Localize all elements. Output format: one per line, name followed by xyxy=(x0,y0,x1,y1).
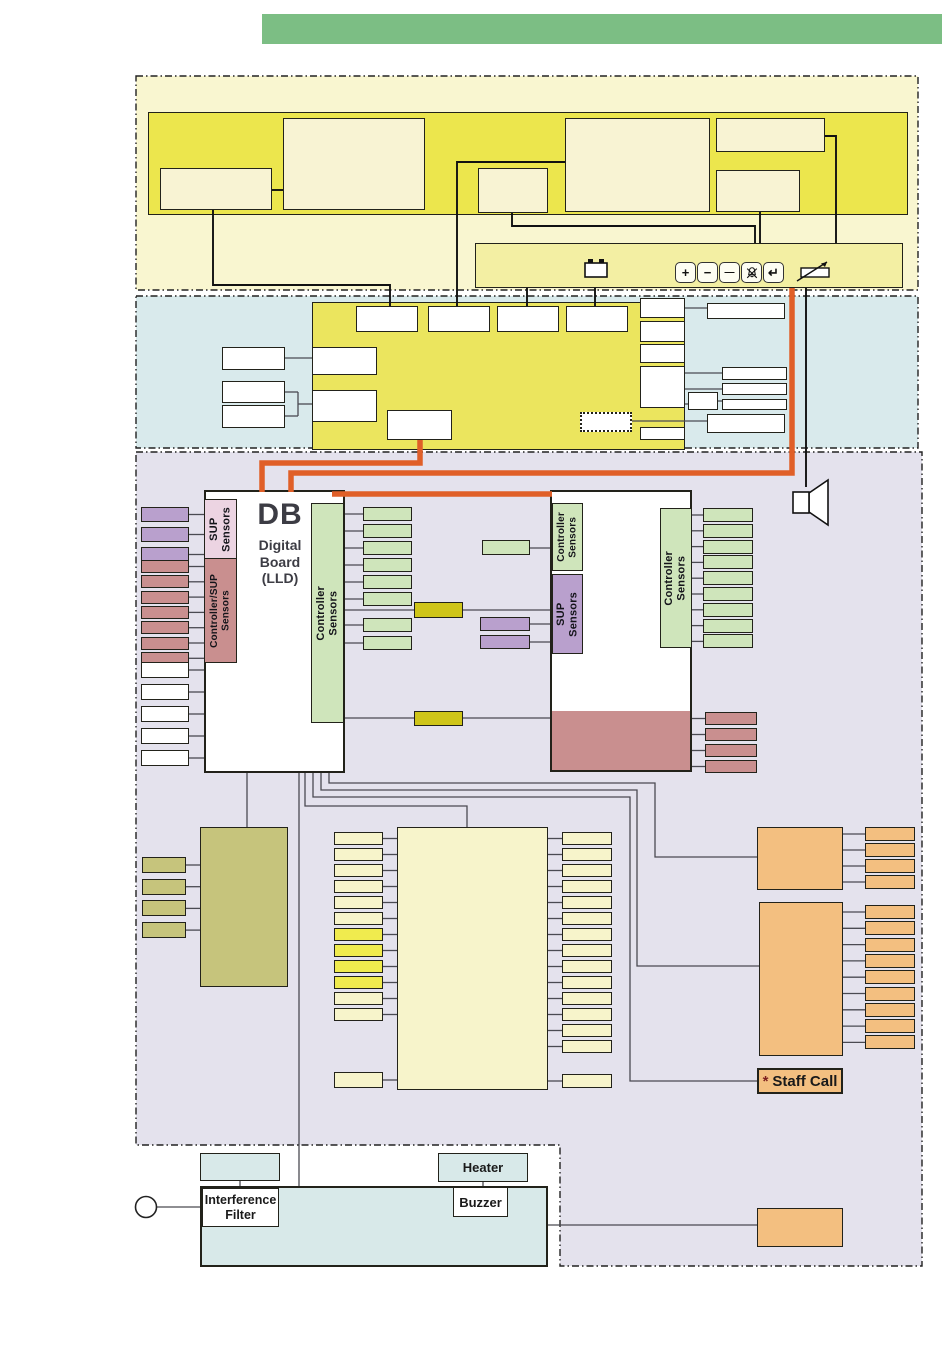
cream-left-box xyxy=(334,960,383,973)
orange-top-box xyxy=(865,827,915,841)
orange-bottom-box xyxy=(865,905,915,919)
orange-bottom-box xyxy=(865,954,915,968)
cream-left-box xyxy=(334,896,383,909)
left-mauve-box xyxy=(141,591,189,604)
db-green-box xyxy=(363,507,412,521)
rb-mauve-box xyxy=(705,744,757,757)
accessory-module xyxy=(757,1208,843,1247)
left-white-box xyxy=(141,662,189,678)
cream-right-box xyxy=(562,960,612,973)
cream-right-box xyxy=(562,832,612,845)
sensor-box xyxy=(482,540,530,555)
peripheral-block xyxy=(722,383,787,395)
actuator-module xyxy=(200,827,288,987)
controller-sup-sensors-strip: Controller/SUPSensors xyxy=(204,558,237,663)
cream-right-box xyxy=(562,976,612,989)
connector-block xyxy=(312,347,377,375)
inline-connector xyxy=(414,602,463,618)
peripheral-block xyxy=(222,405,285,428)
rb-green-box xyxy=(703,587,753,601)
connector-block xyxy=(497,306,559,332)
db-board-name: Digital Board (LLD) xyxy=(240,537,320,587)
mid-purple-box xyxy=(480,617,530,631)
left-purple-box xyxy=(141,507,189,522)
wiring-diagram: + − — ↵ xyxy=(0,0,950,1354)
left-white-box xyxy=(141,706,189,722)
cream-right-box xyxy=(562,944,612,957)
cream-right-box xyxy=(562,1040,612,1053)
rb-mauve-box xyxy=(705,712,757,725)
cream-left-box xyxy=(334,912,383,925)
left-mauve-box xyxy=(141,621,189,634)
left-white-box xyxy=(141,684,189,700)
sup-sensors-strip: SUPSensors xyxy=(204,499,237,559)
orange-bottom-box xyxy=(865,938,915,952)
heater-box: Heater xyxy=(438,1153,528,1182)
peripheral-block xyxy=(707,414,785,433)
khaki-small-box xyxy=(142,857,186,873)
peripheral-block xyxy=(722,399,787,410)
staff-call-module: * Staff Call xyxy=(757,1068,843,1094)
rb-green-box xyxy=(703,555,753,569)
orange-bottom-box xyxy=(865,1035,915,1049)
component-boxes: DB Digital Board (LLD) SUPSensors Contro… xyxy=(0,0,950,1354)
db-board-abbr: DB xyxy=(240,496,320,534)
cream-left-box xyxy=(334,992,383,1005)
cream-right-box xyxy=(562,928,612,941)
connector-block xyxy=(356,306,418,332)
peripheral-block xyxy=(722,367,787,380)
accessory-module xyxy=(757,827,843,890)
cream-left-box xyxy=(334,928,383,941)
peripheral-block xyxy=(688,392,718,410)
connector-block xyxy=(640,427,685,440)
connector-block xyxy=(640,321,685,342)
connector-block xyxy=(640,366,685,408)
orange-top-box xyxy=(865,875,915,889)
left-mauve-box xyxy=(141,560,189,573)
cream-right-box xyxy=(562,912,612,925)
inline-connector xyxy=(414,711,463,726)
cream-left-box xyxy=(334,848,383,861)
cream-right-box xyxy=(562,896,612,909)
cream-left-box xyxy=(334,944,383,957)
cream-left-box xyxy=(334,864,383,877)
peripheral-block xyxy=(222,347,285,370)
cream-right-box xyxy=(562,1024,612,1037)
mains-module xyxy=(200,1153,280,1181)
controller-board-power-section xyxy=(552,711,690,770)
khaki-small-box xyxy=(142,922,186,938)
rb-green-box xyxy=(703,508,753,522)
peripheral-block xyxy=(222,381,285,403)
accessory-module xyxy=(759,902,843,1056)
mid-purple-box xyxy=(480,635,530,649)
orange-bottom-box xyxy=(865,1019,915,1033)
orange-top-box xyxy=(865,843,915,857)
cream-right-box xyxy=(562,848,612,861)
interference-filter-box: Interference Filter xyxy=(202,1188,279,1227)
connector-block xyxy=(640,344,685,363)
optional-module xyxy=(580,412,632,432)
db-green-box xyxy=(363,524,412,538)
left-white-box xyxy=(141,750,189,766)
orange-bottom-box xyxy=(865,1003,915,1017)
cream-left-single-box xyxy=(334,1072,383,1088)
left-purple-box xyxy=(141,527,189,542)
orange-bottom-box xyxy=(865,921,915,935)
rb-green-box xyxy=(703,524,753,538)
rb-green-box xyxy=(703,603,753,617)
db-green-box xyxy=(363,541,412,555)
connector-block xyxy=(640,298,685,318)
left-white-box xyxy=(141,728,189,744)
rb-mauve-box xyxy=(705,728,757,741)
rb-green-box xyxy=(703,634,753,648)
connector-block xyxy=(312,390,377,422)
khaki-small-box xyxy=(142,879,186,895)
cream-right-box xyxy=(562,880,612,893)
db-green-box xyxy=(363,575,412,589)
controller-sensors-strip: ControllerSensors xyxy=(311,503,344,723)
left-mauve-box xyxy=(141,637,189,650)
rb-green-box xyxy=(703,571,753,585)
rb-mauve-box xyxy=(705,760,757,773)
rb-green-box xyxy=(703,540,753,554)
controller-sensors-strip: ControllerSensors xyxy=(660,508,692,648)
connector-block xyxy=(387,410,452,440)
connector-block xyxy=(428,306,490,332)
cream-left-box xyxy=(334,832,383,845)
db-green-box xyxy=(363,592,412,606)
db-green-extra-box xyxy=(363,618,412,632)
cream-left-box xyxy=(334,1008,383,1021)
orange-bottom-box xyxy=(865,970,915,984)
rb-green-box xyxy=(703,619,753,633)
connector-block xyxy=(566,306,628,332)
junction-box xyxy=(397,827,548,1090)
khaki-small-box xyxy=(142,900,186,916)
staff-call-star: * xyxy=(763,1073,769,1090)
controller-sensors-strip: ControllerSensors xyxy=(552,503,583,571)
sup-sensors-strip: SUPSensors xyxy=(552,574,583,654)
cream-left-box xyxy=(334,976,383,989)
staff-call-label: Staff Call xyxy=(772,1073,837,1090)
orange-bottom-box xyxy=(865,987,915,1001)
left-mauve-box xyxy=(141,606,189,619)
peripheral-block xyxy=(707,303,785,319)
buzzer-box: Buzzer xyxy=(453,1187,508,1217)
orange-top-box xyxy=(865,859,915,873)
cream-left-box xyxy=(334,880,383,893)
left-mauve-box xyxy=(141,575,189,588)
cream-right-box xyxy=(562,992,612,1005)
cream-right-box xyxy=(562,864,612,877)
cream-right-box xyxy=(562,1008,612,1021)
db-green-box xyxy=(363,558,412,572)
db-green-extra-box xyxy=(363,636,412,650)
cream-right-single-box xyxy=(562,1074,612,1088)
